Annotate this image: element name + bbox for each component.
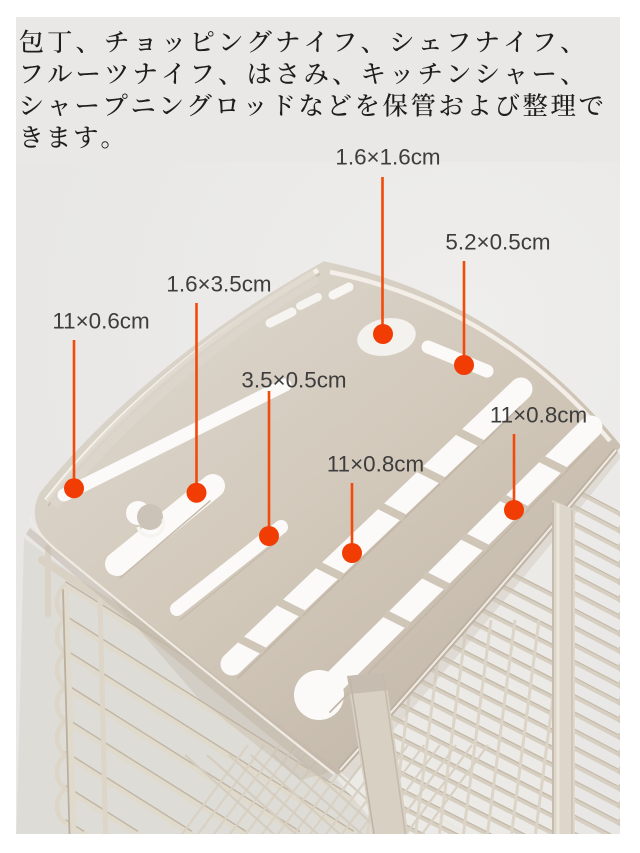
- svg-text:11×0.8cm: 11×0.8cm: [490, 403, 587, 428]
- svg-text:1.6×3.5cm: 1.6×3.5cm: [166, 272, 271, 297]
- svg-text:11×0.8cm: 11×0.8cm: [327, 452, 424, 477]
- svg-text:3.5×0.5cm: 3.5×0.5cm: [241, 368, 346, 393]
- svg-text:11×0.6cm: 11×0.6cm: [52, 309, 149, 334]
- svg-text:5.2×0.5cm: 5.2×0.5cm: [445, 230, 550, 255]
- svg-text:1.6×1.6cm: 1.6×1.6cm: [335, 145, 440, 170]
